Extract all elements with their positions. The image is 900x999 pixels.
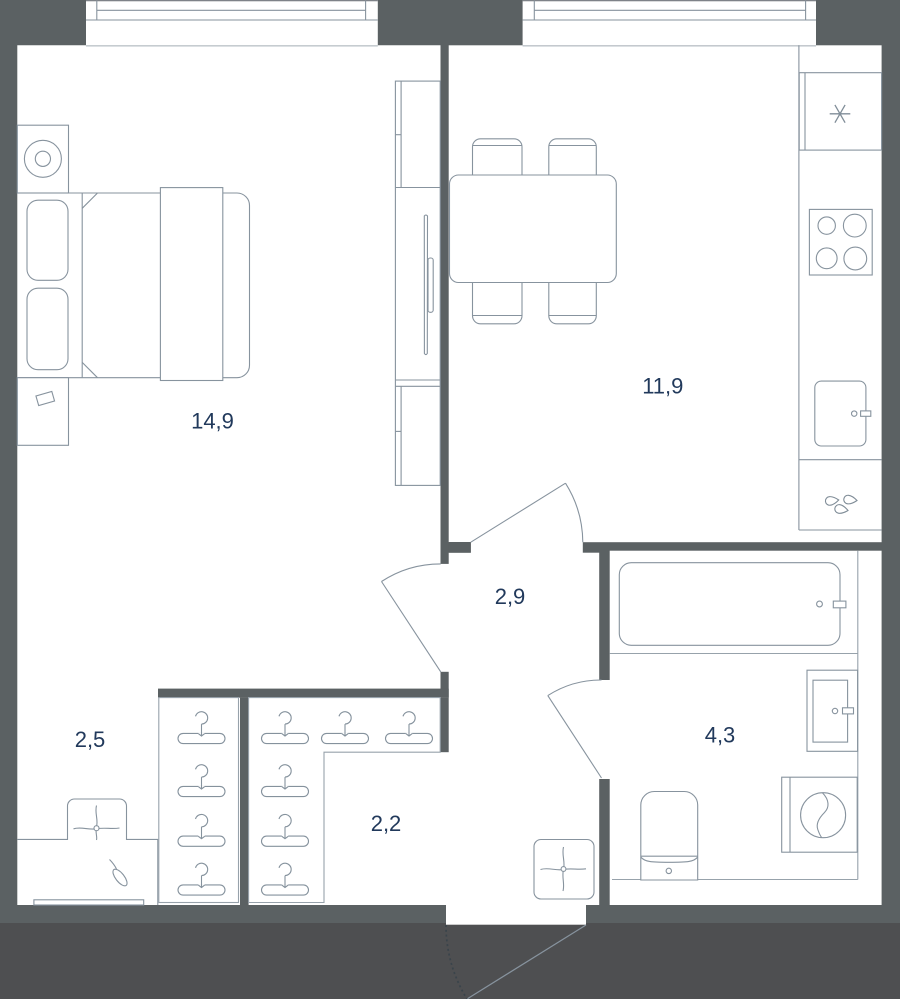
svg-text:2,9: 2,9 [495,584,526,609]
svg-text:4,3: 4,3 [705,723,736,748]
svg-text:11,9: 11,9 [642,373,683,398]
svg-text:2,2: 2,2 [371,811,402,836]
svg-text:14,9: 14,9 [191,408,234,433]
svg-text:2,5: 2,5 [75,727,106,752]
